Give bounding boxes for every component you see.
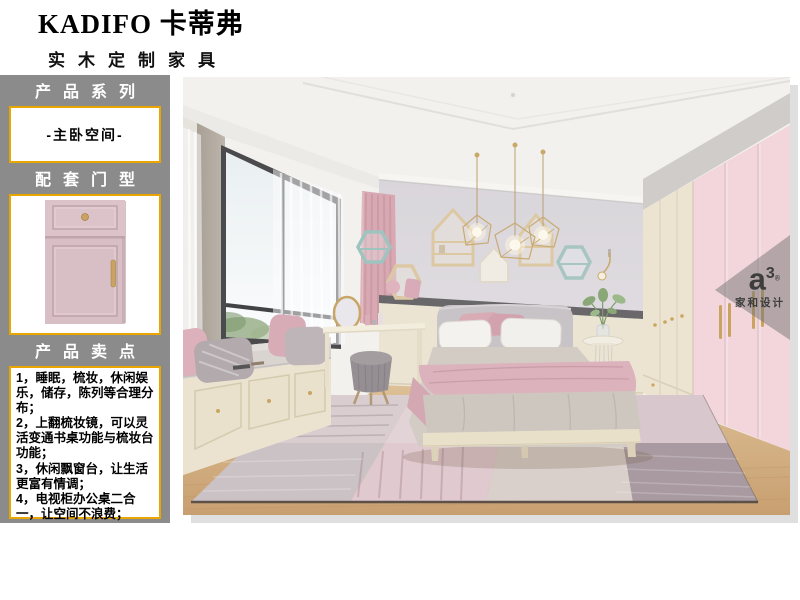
bedroom-render-photo: a3® 家和设计: [183, 77, 790, 515]
brand-header: KADIFO 卡蒂弗 实木定制家具: [38, 2, 298, 71]
selling-point: 4，电视柜办公桌二合一，让空间不浪费；: [16, 492, 154, 522]
designer-watermark: a3® 家和设计: [700, 235, 790, 345]
door-style-box: [9, 194, 161, 335]
series-value: -主卧空间-: [46, 125, 123, 145]
door-style-image: [12, 198, 158, 331]
brand-tagline: 实木定制家具: [38, 46, 298, 71]
selling-point: 2，上翻梳妆镜，可以灵活变通书桌功能与梳妆台功能；: [16, 416, 154, 461]
section-title-door: 配套门型: [0, 171, 170, 190]
selling-points-box: 1，睡眠，梳妆，休闲娱乐，储存，陈列等合理分布； 2，上翻梳妆镜，可以灵活变通书…: [9, 366, 161, 519]
product-info-panel: 产品系列 -主卧空间- 配套门型 产品卖点 1，睡眠，梳妆，休闲娱乐，储存，陈列…: [0, 75, 170, 523]
selling-point: 1，睡眠，梳妆，休闲娱乐，储存，陈列等合理分布；: [16, 371, 154, 416]
section-title-series: 产品系列: [0, 83, 170, 102]
selling-point: 3，休闲飘窗台，让生活更富有情调；: [16, 462, 154, 492]
designer-name: 家和设计: [735, 295, 785, 310]
bedroom-scene: [183, 77, 790, 515]
brand-logo-text: KADIFO 卡蒂弗: [38, 2, 298, 41]
vanity-stool: [350, 351, 392, 405]
section-title-selling: 产品卖点: [0, 343, 170, 362]
designer-logo: a3®: [749, 259, 780, 294]
series-value-box: -主卧空间-: [9, 106, 161, 163]
